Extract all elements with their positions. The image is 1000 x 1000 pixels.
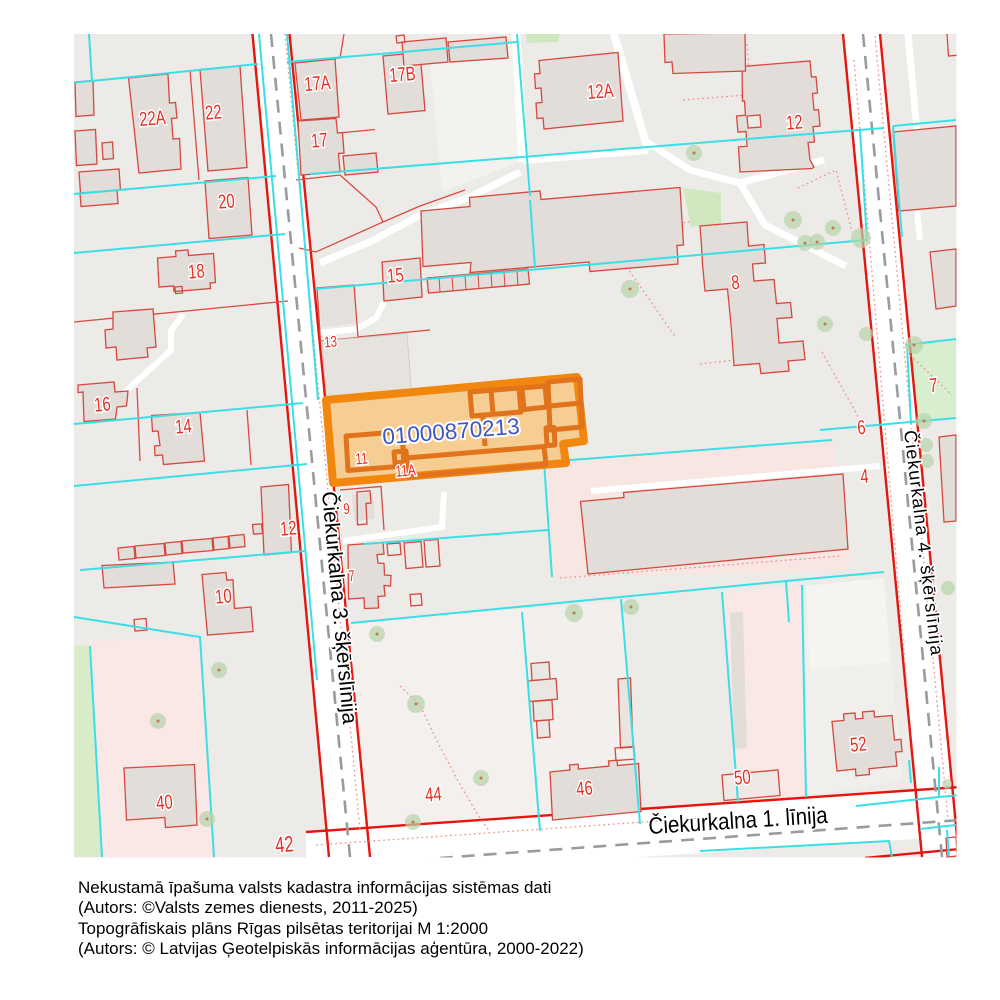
svg-text:46: 46 (575, 776, 593, 800)
svg-text:12A: 12A (586, 79, 614, 104)
svg-text:44: 44 (424, 782, 443, 806)
svg-text:12: 12 (785, 110, 803, 134)
svg-text:22: 22 (204, 100, 222, 124)
svg-text:22A: 22A (138, 106, 166, 131)
svg-text:11A: 11A (395, 460, 417, 480)
svg-text:42: 42 (274, 832, 295, 859)
svg-text:52: 52 (849, 732, 867, 756)
svg-text:16: 16 (93, 392, 111, 416)
svg-text:50: 50 (733, 765, 752, 789)
svg-text:10: 10 (214, 584, 233, 608)
svg-text:20: 20 (217, 189, 236, 213)
svg-text:17A: 17A (303, 71, 331, 96)
svg-text:11: 11 (355, 449, 369, 468)
svg-text:17B: 17B (388, 62, 416, 87)
svg-text:15: 15 (386, 263, 405, 287)
svg-text:12: 12 (279, 516, 297, 540)
svg-text:18: 18 (187, 259, 206, 283)
svg-text:13: 13 (323, 333, 337, 351)
svg-text:40: 40 (155, 790, 174, 814)
svg-text:14: 14 (174, 414, 193, 438)
svg-text:17: 17 (310, 128, 328, 152)
